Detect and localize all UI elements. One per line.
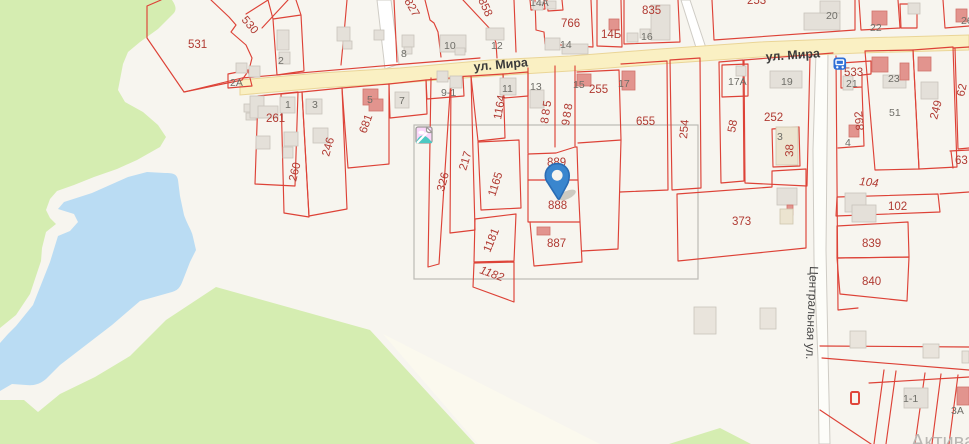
svg-text:766: 766	[561, 18, 580, 30]
svg-text:5: 5	[367, 94, 373, 106]
svg-text:10: 10	[444, 40, 456, 52]
svg-text:14Б: 14Б	[601, 29, 621, 41]
svg-text:63: 63	[955, 155, 968, 167]
svg-text:3А: 3А	[951, 405, 964, 417]
svg-text:840: 840	[862, 276, 881, 288]
svg-text:11: 11	[502, 83, 513, 95]
svg-text:2А: 2А	[230, 77, 243, 89]
svg-text:17А: 17А	[728, 76, 747, 88]
svg-text:14А: 14А	[530, 0, 549, 9]
svg-text:252: 252	[764, 112, 783, 124]
svg-text:835: 835	[642, 5, 661, 17]
svg-text:2: 2	[278, 55, 284, 67]
svg-text:1: 1	[285, 99, 291, 111]
svg-text:8: 8	[401, 48, 407, 60]
svg-text:255: 255	[589, 84, 608, 96]
svg-text:839: 839	[862, 238, 881, 250]
svg-text:887: 887	[547, 238, 566, 250]
svg-text:62: 62	[955, 83, 969, 98]
svg-text:17: 17	[618, 78, 630, 90]
svg-text:13: 13	[530, 81, 542, 93]
svg-text:102: 102	[888, 201, 907, 213]
svg-text:Актива: Актива	[911, 431, 969, 444]
svg-text:15: 15	[573, 79, 585, 91]
svg-text:373: 373	[732, 216, 751, 228]
svg-text:3: 3	[777, 131, 783, 143]
svg-text:22: 22	[870, 22, 882, 34]
svg-text:253: 253	[747, 0, 766, 7]
svg-text:51: 51	[889, 107, 901, 119]
svg-text:9-1: 9-1	[441, 87, 456, 99]
svg-text:21: 21	[846, 78, 858, 90]
svg-text:58: 58	[726, 119, 740, 134]
svg-text:19: 19	[781, 76, 793, 88]
svg-text:655: 655	[636, 116, 655, 128]
svg-text:14: 14	[560, 39, 572, 51]
svg-text:104: 104	[859, 176, 879, 190]
svg-text:38: 38	[784, 144, 796, 157]
svg-text:26: 26	[961, 15, 969, 27]
svg-text:261: 261	[266, 113, 285, 125]
svg-text:7: 7	[399, 95, 405, 107]
svg-text:20: 20	[826, 10, 838, 22]
svg-text:4: 4	[845, 137, 851, 149]
svg-text:254: 254	[678, 118, 692, 139]
svg-text:888: 888	[548, 200, 567, 212]
svg-text:23: 23	[888, 73, 900, 85]
svg-text:3: 3	[312, 99, 318, 111]
svg-text:12: 12	[491, 40, 503, 52]
svg-text:892: 892	[853, 111, 867, 131]
svg-text:531: 531	[188, 39, 207, 51]
svg-text:16: 16	[641, 31, 653, 43]
svg-text:1-1: 1-1	[903, 393, 918, 405]
